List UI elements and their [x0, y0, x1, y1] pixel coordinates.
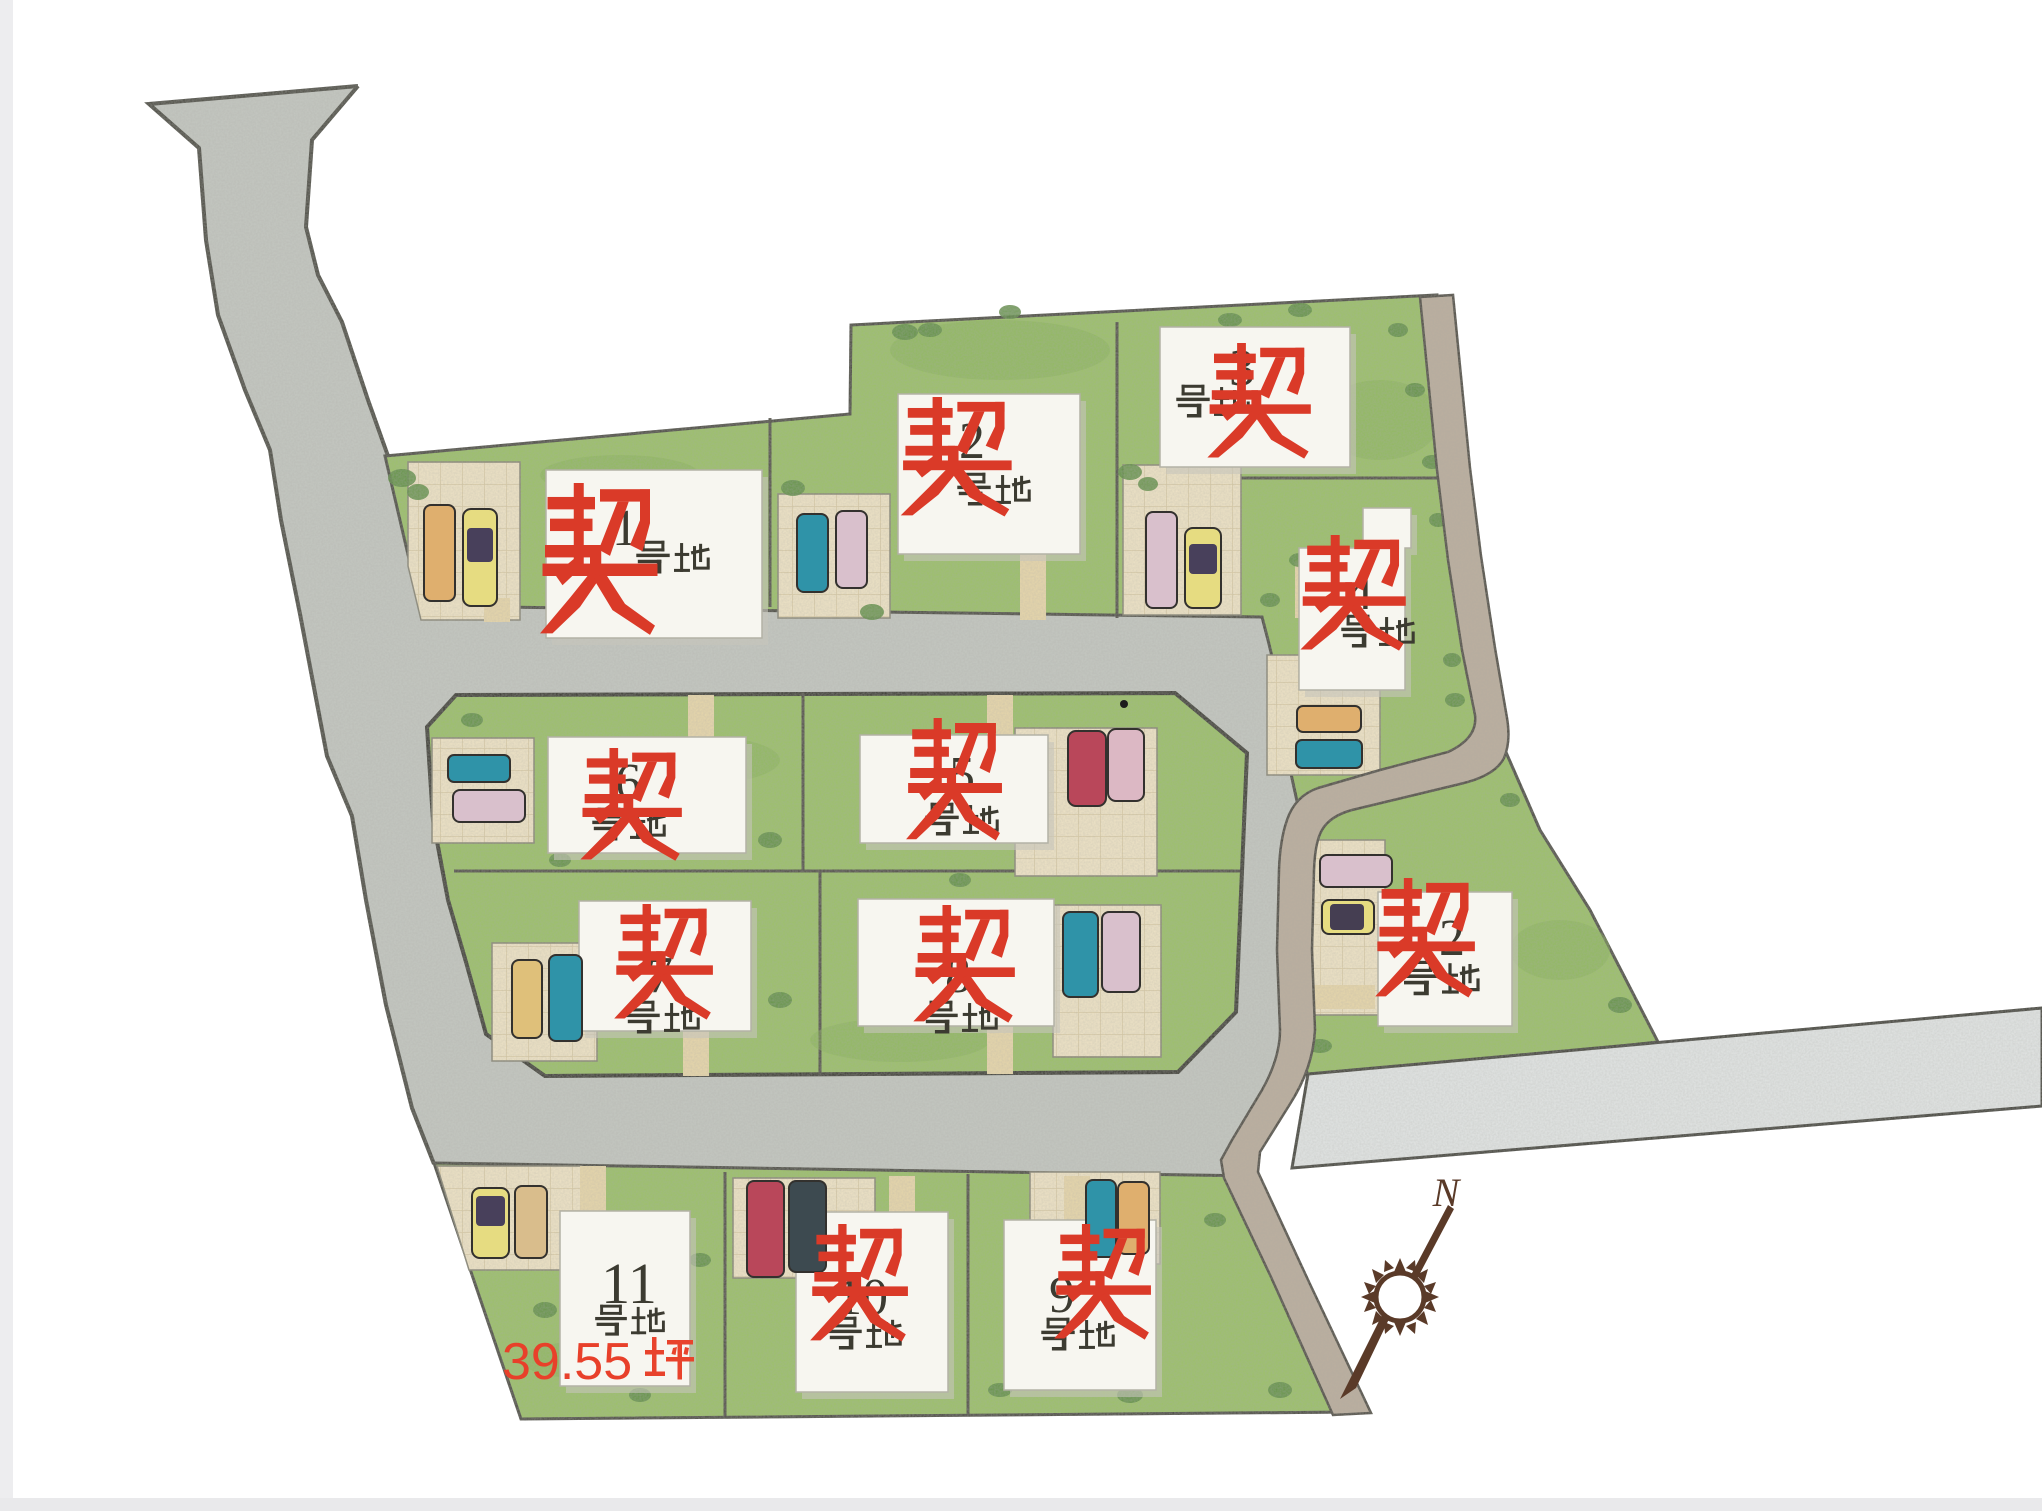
svg-text:39.55: 39.55 — [502, 1333, 632, 1391]
svg-text:N: N — [1432, 1170, 1462, 1215]
